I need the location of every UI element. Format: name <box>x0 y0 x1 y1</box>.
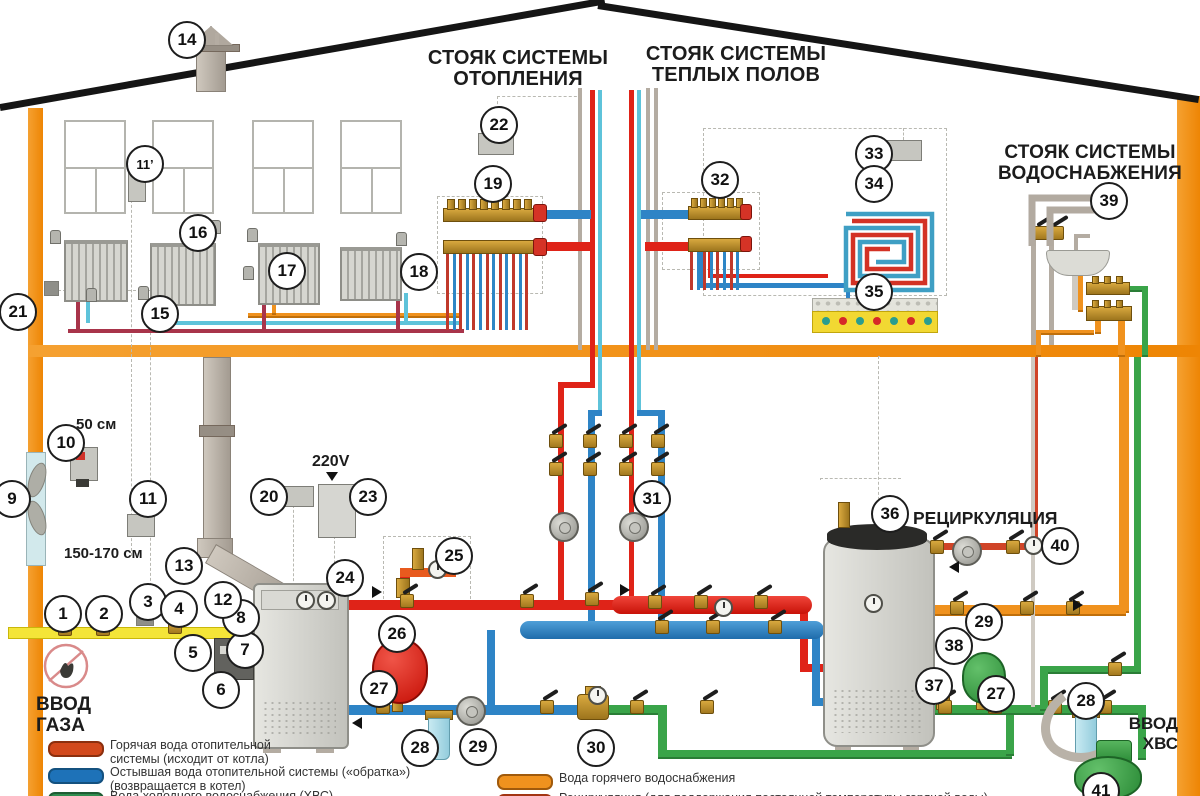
valve-icon <box>540 700 554 714</box>
pipe-segment <box>590 90 595 350</box>
pipe-segment <box>1095 320 1101 334</box>
legend-text-line: Вода горячего водоснабжения <box>559 771 735 785</box>
manifold-valve <box>533 204 547 222</box>
pipe-segment <box>598 90 602 350</box>
pipe-segment <box>1118 320 1125 357</box>
right-wall <box>1177 96 1200 796</box>
valve-icon <box>655 620 669 634</box>
boiler-vents <box>262 700 336 738</box>
manifold-loop-pipe <box>736 252 739 290</box>
pipe-segment <box>629 350 634 602</box>
callout-29: 29 <box>459 728 497 766</box>
valve-icon <box>706 620 720 634</box>
pipe-segment <box>1134 357 1141 674</box>
manifold-valve <box>740 204 752 220</box>
cold-water-inlet-label: ВВОД ХВС <box>1126 714 1178 754</box>
flow-arrow-icon <box>949 561 959 573</box>
callout-18: 18 <box>400 253 438 291</box>
valve-icon <box>1020 601 1034 615</box>
manifold-loop-pipe <box>446 254 449 330</box>
manifold-loop-pipe <box>690 252 693 290</box>
pipe-segment <box>645 242 693 251</box>
floor-pipe-dot <box>822 317 830 325</box>
pump-icon <box>456 696 486 726</box>
callout-34: 34 <box>855 165 893 203</box>
callout-27: 27 <box>360 670 398 708</box>
pipe-segment <box>76 297 80 331</box>
dashed-link-line <box>150 292 152 611</box>
co-detector-height-label: 50 см <box>76 416 116 433</box>
valve-icon <box>768 620 782 634</box>
manifold-outlet <box>1116 276 1123 284</box>
callout-11: 11 <box>129 480 167 518</box>
valve-icon <box>930 540 944 554</box>
legend-swatch <box>48 792 104 796</box>
floor-slab <box>28 345 1200 357</box>
manifold-loop-pipe <box>499 254 502 330</box>
callout-26: 26 <box>378 615 416 653</box>
gas-detector-height-label: 150-170 см <box>64 545 143 562</box>
radiator-valve-icon <box>396 232 407 246</box>
window <box>252 120 314 214</box>
legend-text-line: Остывшая вода отопительной системы («обр… <box>110 765 410 779</box>
manifold-loop-pipe <box>505 254 508 330</box>
pipe-segment <box>637 350 641 414</box>
callout-23: 23 <box>349 478 387 516</box>
dashed-link-line <box>820 478 901 480</box>
manifold-outlet <box>718 198 725 208</box>
dashed-link-line <box>878 356 880 515</box>
legend-text-line: Рециркуляция (для поддержания постоянной… <box>559 791 988 796</box>
valve-lever-icon <box>932 529 949 541</box>
riser-water-supply-title-line2: ВОДОСНАБЖЕНИЯ <box>998 163 1182 184</box>
boiler-dial <box>296 591 315 610</box>
flue-collar <box>199 425 235 437</box>
window-mullion <box>95 167 97 212</box>
valve-lever-icon <box>632 689 649 701</box>
floor-pipe-dot <box>890 317 898 325</box>
voltage-arrow-icon <box>326 472 338 481</box>
valve-lever-icon <box>696 584 713 596</box>
floor-pipe-dot <box>839 317 847 325</box>
pipe-segment <box>248 313 462 318</box>
cold-inlet-line1: ВВОД <box>1129 714 1178 733</box>
boiler-dial <box>317 591 336 610</box>
diagram-canvas: СТОЯК СИСТЕМЫ ОТОПЛЕНИЯ СТОЯК СИСТЕМЫ ТЕ… <box>0 0 1200 796</box>
chimney-stack <box>196 48 226 92</box>
riser-warm-floors-title-line1: СТОЯК СИСТЕМЫ <box>646 43 826 65</box>
valve-icon <box>549 462 563 476</box>
legend-text-line: системы (исходит от котла) <box>110 752 271 766</box>
manifold-outlet <box>727 198 734 208</box>
pipe-segment <box>1142 286 1148 357</box>
callout-17: 17 <box>268 252 306 290</box>
flow-arrow-icon <box>372 586 382 598</box>
manifold-loop-pipe <box>697 252 700 290</box>
manifold-loop-pipe <box>466 254 469 330</box>
voltage-label: 220V <box>312 453 349 471</box>
manifold-loop-pipe <box>710 252 713 290</box>
dashed-link-line <box>497 96 582 98</box>
pipe-segment <box>590 350 595 386</box>
pipe-segment <box>1006 712 1014 756</box>
callout-32: 32 <box>701 161 739 199</box>
gauge-icon <box>588 686 607 705</box>
valve-icon <box>651 462 665 476</box>
radiator-valve-icon <box>243 266 254 280</box>
window <box>340 120 402 214</box>
callout-24: 24 <box>326 559 364 597</box>
valve-icon <box>754 595 768 609</box>
manifold-outlet <box>1092 300 1099 308</box>
radiator-valve-icon <box>50 230 61 244</box>
valve-icon <box>583 434 597 448</box>
pipe-segment <box>1031 232 1036 345</box>
callout-11’: 11’ <box>126 145 164 183</box>
callout-5: 5 <box>174 634 212 672</box>
callout-2: 2 <box>85 595 123 633</box>
pipe-segment <box>812 632 820 706</box>
callout-12: 12 <box>204 581 242 619</box>
valve-icon <box>400 594 414 608</box>
gauge-icon <box>714 598 733 617</box>
legend-text: Вода холодного водоснабжения (ХВС) <box>110 789 333 796</box>
pipe-segment <box>629 90 634 350</box>
pipe-segment <box>598 350 602 414</box>
valve-icon <box>520 594 534 608</box>
legend-swatch <box>48 768 104 784</box>
riser-heating-title: СТОЯК СИСТЕМЫ ОТОПЛЕНИЯ <box>420 48 616 90</box>
valve-icon <box>619 462 633 476</box>
manifold-loop-pipe <box>512 254 515 330</box>
callout-21: 21 <box>0 293 37 331</box>
valve-icon <box>583 462 597 476</box>
manifold-loop-pipe <box>519 254 522 330</box>
manifold-loop-pipe <box>486 254 489 330</box>
manifold-valve <box>533 238 547 256</box>
gas-hazard-icon <box>40 640 92 692</box>
cold-inlet-line2: ХВС <box>1143 734 1178 753</box>
flow-arrow-icon <box>352 717 362 729</box>
pipe-segment <box>1036 330 1094 335</box>
valve-lever-icon <box>1008 529 1025 541</box>
valve-lever-icon <box>1110 651 1127 663</box>
valve-icon <box>700 700 714 714</box>
callout-28: 28 <box>1067 682 1105 720</box>
legend-text: Горячая вода отопительнойсистемы (исходи… <box>110 738 271 766</box>
riser-heating-title-line2: ОТОПЛЕНИЯ <box>453 68 583 90</box>
manifold-outlet <box>524 199 532 210</box>
valve-icon <box>651 434 665 448</box>
legend-swatch <box>497 774 553 790</box>
floor-manifold-bar <box>688 238 746 252</box>
flue-vertical <box>203 357 231 544</box>
callout-39: 39 <box>1090 182 1128 220</box>
manifold-loop-pipe <box>472 254 475 330</box>
co-detector-base <box>76 479 89 487</box>
dhw-manifold-orange <box>1086 306 1132 321</box>
floor-pipe-dot <box>924 317 932 325</box>
manifold-outlet <box>447 199 455 210</box>
floor-manifold-bar <box>688 206 746 220</box>
riser-water-supply-title-line1: СТОЯК СИСТЕМЫ <box>1004 142 1175 163</box>
radiator-valve-icon <box>86 288 97 302</box>
valve-lever-icon <box>542 689 559 701</box>
heating-manifold-bar <box>443 208 537 222</box>
manifold-loop-pipe <box>703 252 706 290</box>
manifold-outlet <box>1116 300 1123 308</box>
valve-icon <box>1108 662 1122 676</box>
manifold-loop-pipe <box>479 254 482 330</box>
valve-lever-icon <box>702 689 719 701</box>
callout-25: 25 <box>435 537 473 575</box>
pipe-segment <box>646 88 650 350</box>
callout-10: 10 <box>47 424 85 462</box>
callout-40: 40 <box>1041 527 1079 565</box>
manifold-loop-pipe <box>459 254 462 330</box>
valve-icon <box>549 434 563 448</box>
manifold-outlet <box>1104 276 1111 284</box>
callout-36: 36 <box>871 495 909 533</box>
manifold-loop-pipe <box>716 252 719 290</box>
radiator-valve-icon <box>138 286 149 300</box>
outdoor-sensor <box>44 281 59 296</box>
pipe-segment <box>708 274 828 278</box>
legend-swatch <box>48 741 104 757</box>
callout-35: 35 <box>855 273 893 311</box>
window-mullion <box>371 167 373 212</box>
callout-13: 13 <box>165 547 203 585</box>
air-vent <box>412 548 424 570</box>
manifold-outlet <box>1104 300 1111 308</box>
manifold-valve <box>740 236 752 252</box>
floor-pipe-dot <box>873 317 881 325</box>
callout-15: 15 <box>141 295 179 333</box>
pipe-segment <box>558 382 564 602</box>
valve-icon <box>630 700 644 714</box>
pipe-segment <box>68 329 464 333</box>
pipe-segment <box>1040 666 1140 674</box>
legend-text: Рециркуляция (для поддержания постоянной… <box>559 791 988 796</box>
valve-lever-icon <box>952 590 969 602</box>
callout-7: 7 <box>226 631 264 669</box>
callout-4: 4 <box>160 590 198 628</box>
valve-icon <box>648 595 662 609</box>
callout-29: 29 <box>965 603 1003 641</box>
legend-text-line: Вода холодного водоснабжения (ХВС) <box>110 789 333 796</box>
manifold-outlet <box>700 198 707 208</box>
manifold-loop-pipe <box>492 254 495 330</box>
callout-19: 19 <box>474 165 512 203</box>
manifold-loop-pipe <box>730 252 733 290</box>
manifold-outlet <box>709 198 716 208</box>
gas-inlet-label: ВВОД ГАЗА <box>36 694 91 736</box>
radiator-valve-icon <box>247 228 258 242</box>
manifold-outlet <box>458 199 466 210</box>
pipe-segment <box>637 90 641 350</box>
pipe-segment <box>86 301 90 323</box>
heating-manifold-bar <box>443 240 537 254</box>
pipe-segment <box>1036 330 1041 357</box>
valve-lever-icon <box>756 584 773 596</box>
callout-30: 30 <box>577 729 615 767</box>
flow-arrow-icon <box>620 584 630 596</box>
pipe-segment <box>654 88 658 350</box>
legend-text: Вода горячего водоснабжения <box>559 771 735 785</box>
valve-icon <box>619 434 633 448</box>
manifold-outlet <box>691 198 698 208</box>
callout-28: 28 <box>401 729 439 767</box>
gas-inlet-line2: ГАЗА <box>36 715 85 736</box>
manifold-outlet <box>1092 276 1099 284</box>
callout-14: 14 <box>168 21 206 59</box>
legend-text-line: Горячая вода отопительной <box>110 738 271 752</box>
callout-27: 27 <box>977 675 1015 713</box>
window-mullion <box>183 167 185 212</box>
pipe-segment <box>1119 357 1129 613</box>
heater-air-vent <box>838 502 850 528</box>
gas-inlet-line1: ВВОД <box>36 694 91 715</box>
valve-icon <box>694 595 708 609</box>
manifold-outlet <box>513 199 521 210</box>
manifold-outlet <box>469 199 477 210</box>
valve-icon <box>950 601 964 615</box>
manifold-outlet <box>502 199 510 210</box>
pipe-segment <box>1078 270 1083 312</box>
pipe-segment <box>578 88 582 350</box>
chimney-cap-post <box>215 33 219 45</box>
pipe-segment <box>487 630 495 712</box>
valve-icon <box>1006 540 1020 554</box>
heater-thermometer <box>864 594 883 613</box>
dashed-link-line <box>293 505 295 586</box>
radiator <box>340 247 402 301</box>
window-mullion <box>283 167 285 212</box>
valve-icon <box>585 592 599 606</box>
pipe-segment <box>145 321 462 325</box>
riser-warm-floors-title-line2: ТЕПЛЫХ ПОЛОВ <box>652 64 820 86</box>
callout-6: 6 <box>202 671 240 709</box>
floor-heating-spiral <box>842 194 936 294</box>
heater-texture <box>832 688 922 733</box>
manifold-loop-pipe <box>723 252 726 290</box>
manifold-loop-pipe <box>453 254 456 330</box>
riser-water-supply-title: СТОЯК СИСТЕМЫ ВОДОСНАБЖЕНИЯ <box>998 142 1182 184</box>
floor-pipe-dot <box>856 317 864 325</box>
floor-pipe-dot <box>907 317 915 325</box>
manifold-loop-pipe <box>525 254 528 330</box>
pipe-segment <box>344 600 614 610</box>
recirculation-label: РЕЦИРКУЛЯЦИЯ <box>913 508 1058 529</box>
callout-37: 37 <box>915 667 953 705</box>
sink-basin <box>1046 250 1110 276</box>
valve-lever-icon <box>522 583 539 595</box>
callout-16: 16 <box>179 214 217 252</box>
callout-22: 22 <box>480 106 518 144</box>
pipe-segment <box>1031 357 1035 707</box>
callout-1: 1 <box>44 595 82 633</box>
flow-arrow-icon <box>1073 599 1083 611</box>
callout-31: 31 <box>633 480 671 518</box>
window <box>64 120 126 214</box>
pipe-segment <box>641 210 691 219</box>
pump-icon <box>549 512 579 542</box>
callout-20: 20 <box>250 478 288 516</box>
riser-heating-title-line1: СТОЯК СИСТЕМЫ <box>428 47 608 69</box>
riser-warm-floors-title: СТОЯК СИСТЕМЫ ТЕПЛЫХ ПОЛОВ <box>630 44 842 86</box>
pipe-segment <box>658 750 1012 759</box>
pipe-segment <box>404 293 408 323</box>
